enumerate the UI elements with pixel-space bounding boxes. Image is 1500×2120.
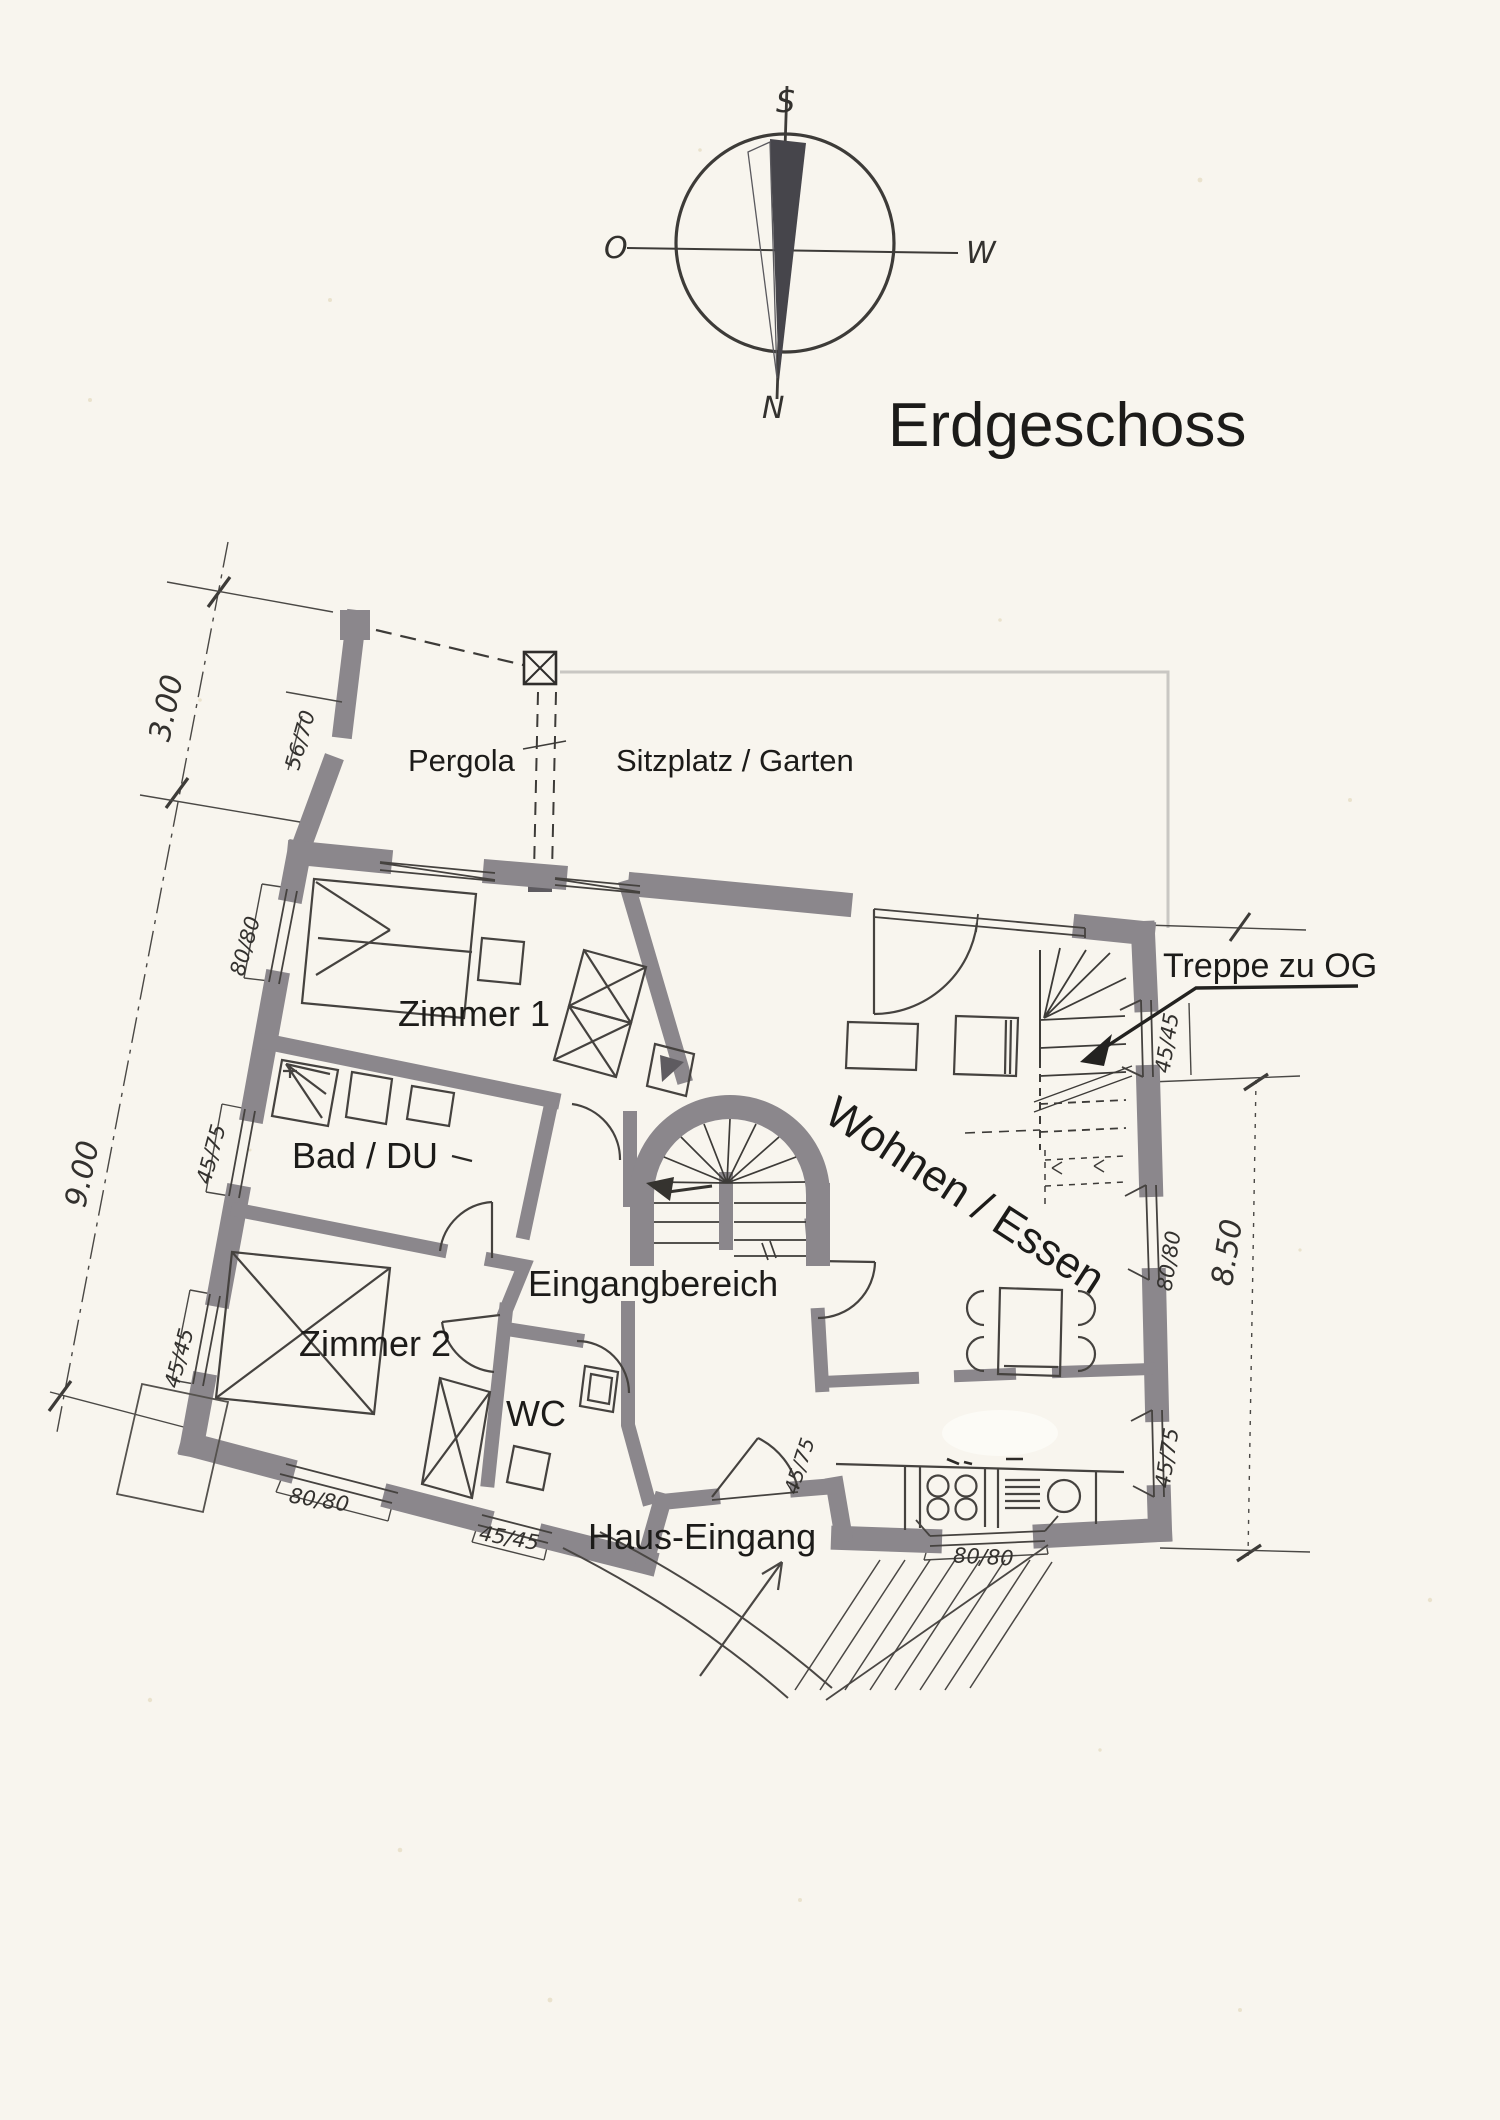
dim-line-west xyxy=(57,542,228,1432)
room-label-zimmer1: Zimmer 1 xyxy=(398,993,550,1034)
bath-sink xyxy=(346,1072,392,1124)
compass-rose: S O W N xyxy=(604,85,997,426)
dimension-labels: 3.00 9.00 8.50 56/70 80/80 45/75 45/45 8… xyxy=(59,672,1250,1571)
pergola-post-x-icon xyxy=(524,652,556,684)
living-furniture xyxy=(846,1016,1018,1076)
sink-icon xyxy=(1005,1480,1080,1512)
kitchen xyxy=(836,1410,1124,1530)
dim-south-window1: 80/80 xyxy=(287,1483,351,1516)
closet-zimmer2 xyxy=(422,1378,490,1498)
door-zimmer1 xyxy=(572,1104,620,1160)
dining-chairs xyxy=(967,1291,1095,1371)
central-stair xyxy=(630,1095,830,1260)
wc-washbasin xyxy=(507,1446,550,1490)
dim-east-window3: 45/75 xyxy=(1150,1426,1183,1490)
dim-ticks-east xyxy=(1237,1074,1268,1561)
og-stair-treads xyxy=(1040,1016,1126,1076)
room-label-wc: WC xyxy=(506,1393,566,1434)
room-label-zimmer2: Zimmer 2 xyxy=(299,1323,451,1364)
dining-set xyxy=(967,1288,1095,1376)
room-label-haus-eingang: Haus-Eingang xyxy=(588,1516,816,1557)
og-stair xyxy=(965,948,1132,1205)
floor-plan-canvas: S O W N Erdgeschoss Pergola Sitzplatz / … xyxy=(0,0,1500,2120)
room-label-wohnen-essen: Wohnen / Essen xyxy=(817,1087,1114,1304)
dim-extensions-west xyxy=(50,582,333,1430)
floor-plan-page: S O W N Erdgeschoss Pergola Sitzplatz / … xyxy=(0,0,1500,2120)
entry-threshold xyxy=(712,1492,798,1500)
whiteout-blob xyxy=(942,1410,1058,1456)
leader-arrowhead-icon xyxy=(1080,1034,1112,1066)
compass-label-south: S xyxy=(776,85,795,120)
dim-south-window2: 45/45 xyxy=(477,1521,541,1555)
pergola-edge-dashed xyxy=(534,692,556,872)
room-label-treppe-og: Treppe zu OG xyxy=(1163,947,1377,985)
area-label-pergola: Pergola xyxy=(408,743,516,778)
dim-east-window1: 45/45 xyxy=(1150,1011,1183,1075)
dim-west-length: 9.00 xyxy=(59,1138,107,1211)
dim-tick-northeast xyxy=(1230,913,1250,941)
dim-line-east xyxy=(1248,1080,1256,1556)
glass-front xyxy=(874,909,1085,938)
page-title: Erdgeschoss xyxy=(888,391,1246,460)
compass-label-north: N xyxy=(762,391,784,426)
bad-label-dash xyxy=(452,1156,472,1161)
pergola-post-top-left xyxy=(340,610,370,640)
dim-west-window1: 80/80 xyxy=(225,914,265,979)
dim-pergola-post: 56/70 xyxy=(280,708,320,773)
steps-hatching xyxy=(795,1560,1052,1690)
door-bad xyxy=(440,1202,492,1258)
bracket-east-window1 xyxy=(1189,1003,1191,1075)
porch-door-wall xyxy=(662,1486,835,1502)
dim-ticks-west xyxy=(49,577,230,1411)
dim-south-window3: 80/80 xyxy=(953,1543,1015,1570)
dim-east-length: 8.50 xyxy=(1205,1217,1250,1288)
dim-pergola-depth: 3.00 xyxy=(143,672,191,745)
room-label-eingangbereich: Eingangbereich xyxy=(528,1263,778,1304)
area-label-garden: Sitzplatz / Garten xyxy=(616,743,854,778)
stove-icon xyxy=(928,1476,977,1520)
pergola-tick xyxy=(523,741,566,749)
scan-marks xyxy=(947,1459,1023,1464)
compass-label-west: W xyxy=(966,236,997,271)
room-label-bad: Bad / DU xyxy=(292,1135,438,1176)
door-hall-living xyxy=(818,1261,875,1318)
bath-fixture xyxy=(407,1086,454,1126)
dim-west-window2: 45/75 xyxy=(192,1122,231,1187)
pergola-beam-dashed xyxy=(376,630,536,668)
toilet xyxy=(580,1366,618,1412)
compass-label-east: O xyxy=(604,231,628,266)
closet-zimmer1 xyxy=(554,950,646,1077)
og-stair-winders xyxy=(1044,948,1126,1018)
dining-table xyxy=(998,1288,1062,1376)
stair-down-arrow-icon xyxy=(646,1177,712,1201)
treppe-leader xyxy=(1080,986,1358,1066)
